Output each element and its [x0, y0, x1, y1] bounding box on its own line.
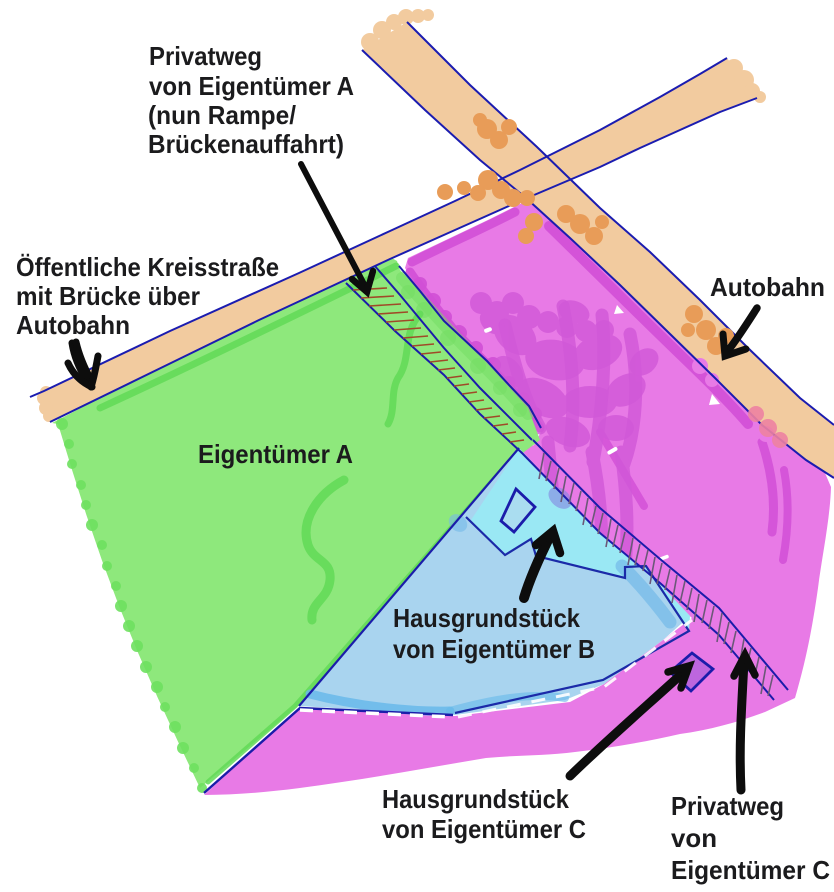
- svg-text:von Eigentümer B: von Eigentümer B: [393, 634, 595, 664]
- svg-text:(nun Rampe/: (nun Rampe/: [148, 100, 296, 130]
- svg-text:Autobahn: Autobahn: [710, 272, 825, 302]
- svg-text:Eigentümer C: Eigentümer C: [671, 855, 830, 885]
- svg-text:Hausgrundstück: Hausgrundstück: [393, 603, 580, 633]
- svg-text:Eigentümer A: Eigentümer A: [198, 439, 353, 469]
- svg-text:mit Brücke über: mit Brücke über: [16, 281, 200, 311]
- svg-text:Autobahn: Autobahn: [16, 310, 130, 340]
- svg-text:Brückenauffahrt): Brückenauffahrt): [148, 129, 344, 159]
- svg-text:Hausgrundstück: Hausgrundstück: [382, 784, 569, 814]
- svg-text:von Eigentümer A: von Eigentümer A: [149, 71, 354, 101]
- svg-text:Privatweg: Privatweg: [149, 41, 262, 71]
- svg-text:Öffentliche Kreisstraße: Öffentliche Kreisstraße: [16, 252, 279, 282]
- svg-text:von: von: [671, 823, 717, 853]
- svg-text:Privatweg: Privatweg: [671, 791, 784, 821]
- svg-text:von Eigentümer C: von Eigentümer C: [382, 814, 586, 844]
